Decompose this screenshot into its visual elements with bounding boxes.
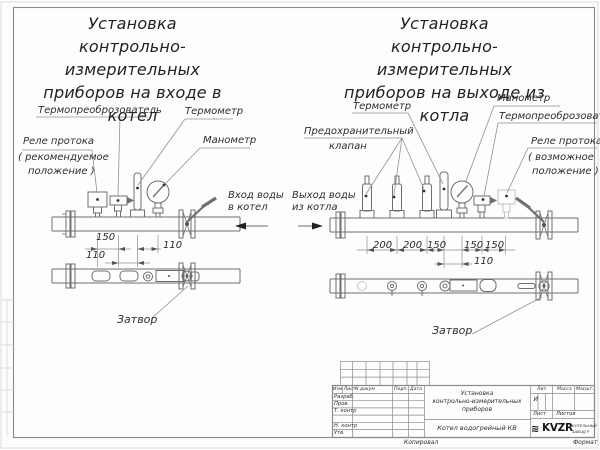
stamp-row-approved: Утв. [334,431,345,437]
left-dim-150: 150 [96,232,115,243]
stamp-doc-title-line3: приборов [426,406,528,414]
right-dim-150c: 150 [485,240,504,251]
left-pipe-top-view [52,263,240,289]
stamp-row-checked: Пров. [334,402,349,408]
kvzr-logo-sub1: КОТЕЛЬНЫЙ [572,424,597,428]
right-dim-150a: 150 [427,240,446,251]
label-left-valve: Затвор [117,314,157,326]
stamp-header-sign: Подп. [394,387,408,392]
left-title-line2: контрольно-измерительных [25,35,240,81]
label-right-flow-relay: Реле протока [531,136,600,147]
label-right-transducer: Термопреоброзователь [499,111,600,122]
label-left-transducer: Термопреоброзователь [38,105,162,116]
right-flow-relay-ghost [498,190,515,218]
label-left-flow-relay-note1: ( рекомендуемое [18,152,109,163]
drawing-sheet: Установка контрольно-измерительных прибо… [0,0,600,450]
left-manometer-icon [147,181,169,217]
label-left-manometer: Манометр [203,135,256,146]
label-right-manometer: Манометр [497,93,550,104]
label-right-valve: Затвор [432,325,472,337]
stamp-header-izm-list: Изм Лист [333,387,355,392]
right-title-line1: Установка [332,12,557,35]
label-left-thermometer: Термометр [185,106,243,117]
left-shutoff-valve-icon [179,198,216,238]
stamp-header-ndoc: N докум [355,387,375,392]
left-dim-110b: 110 [86,250,105,261]
kvzr-logo-text: KVZR [542,423,573,435]
label-right-flow-relay-note2: положение ) [532,166,599,177]
label-left-flow-relay-note2: положение ) [28,166,95,177]
stamp-product: Котел водогрейный КВ [426,424,528,432]
label-right-thermometer: Термометр [353,101,411,112]
stamp-scale-label: Масшт. [576,387,594,392]
right-leader-dots [365,188,508,201]
stamp-format-label: Формат [573,440,597,447]
stamp-sheets-label: Листов [556,412,575,418]
stamp-lit-value: И [534,397,539,404]
stamp-row-tcontrol: Т. контр [334,409,356,415]
kvzr-logo-mark-icon: ≋ [531,424,539,435]
stamp-header-date: Дата [410,387,422,392]
right-dim-110: 110 [474,256,493,267]
label-left-flow-relay: Реле протока [23,136,94,147]
right-manometer-icon [451,181,473,218]
left-title-line3: приборов на входе в [25,81,240,104]
stamp-copied-label: Копировал [404,440,438,447]
stamp-sheet-label: Лист [533,412,546,418]
right-dim-200a: 200 [373,240,392,251]
label-safety-valve-line1: Предохранительный [304,126,414,137]
right-title-line2: контрольно-измерительных [332,35,557,81]
label-outlet-line1: Выход воды [292,190,356,201]
label-inlet-line1: Вход воды [228,190,284,201]
label-safety-valve-line2: клапан [329,141,367,152]
right-dim-200b: 200 [403,240,422,251]
stamp-mass-label: Масса [557,387,572,392]
stamp-row-developed: Разраб. [334,395,354,401]
kvzr-logo-sub2: ЗАВОД Р [572,430,589,434]
right-dim-150b: 150 [464,240,483,251]
right-pipe-side-view [298,172,578,239]
stamp-doc-title-line2: контрольно-измерительных [426,398,528,406]
right-pipe-top-view [330,272,578,300]
left-title-line1: Установка [25,12,240,35]
stamp-row-ncontrol: Н. контр [334,424,357,430]
stamp-doc-title: Установка контрольно-измерительных прибо… [426,390,528,414]
label-inlet-line2: в котел [228,202,268,213]
label-outlet-line2: из котла [292,202,338,213]
stamp-lit-label: Лит. [537,387,548,392]
label-right-flow-relay-note1: ( возможное [528,152,594,163]
safety-valve-icons [360,176,434,218]
left-dim-110a: 110 [163,240,182,251]
stamp-doc-title-line1: Установка [426,390,528,398]
